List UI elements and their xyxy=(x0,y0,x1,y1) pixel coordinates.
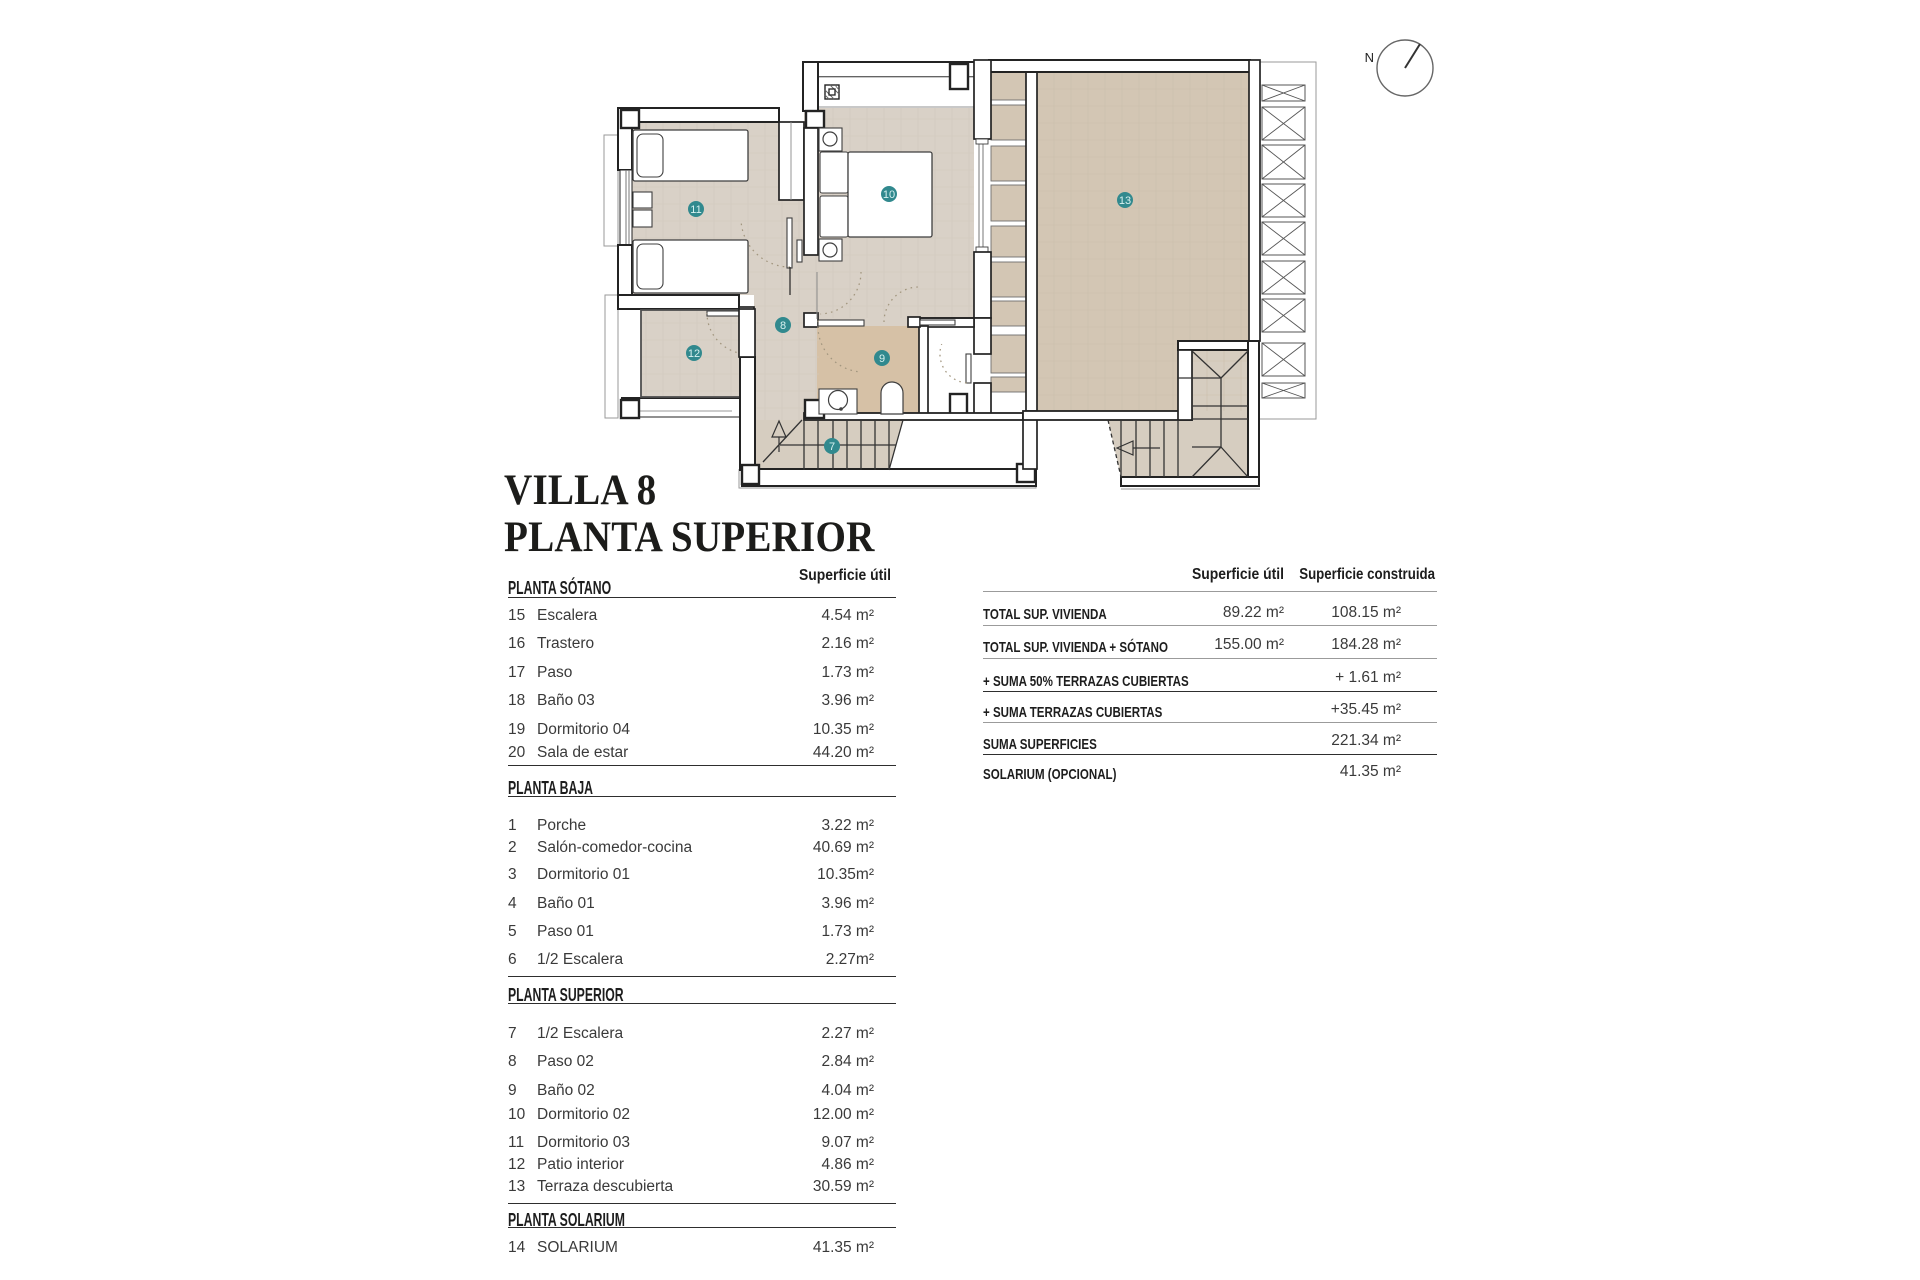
svg-text:9: 9 xyxy=(879,353,885,365)
svg-text:8: 8 xyxy=(780,320,786,332)
svg-text:10: 10 xyxy=(883,189,895,201)
svg-text:13: 13 xyxy=(1119,195,1131,207)
svg-text:N: N xyxy=(1365,50,1374,65)
svg-text:11: 11 xyxy=(690,204,701,216)
svg-text:12: 12 xyxy=(688,348,700,360)
svg-text:7: 7 xyxy=(829,441,835,453)
